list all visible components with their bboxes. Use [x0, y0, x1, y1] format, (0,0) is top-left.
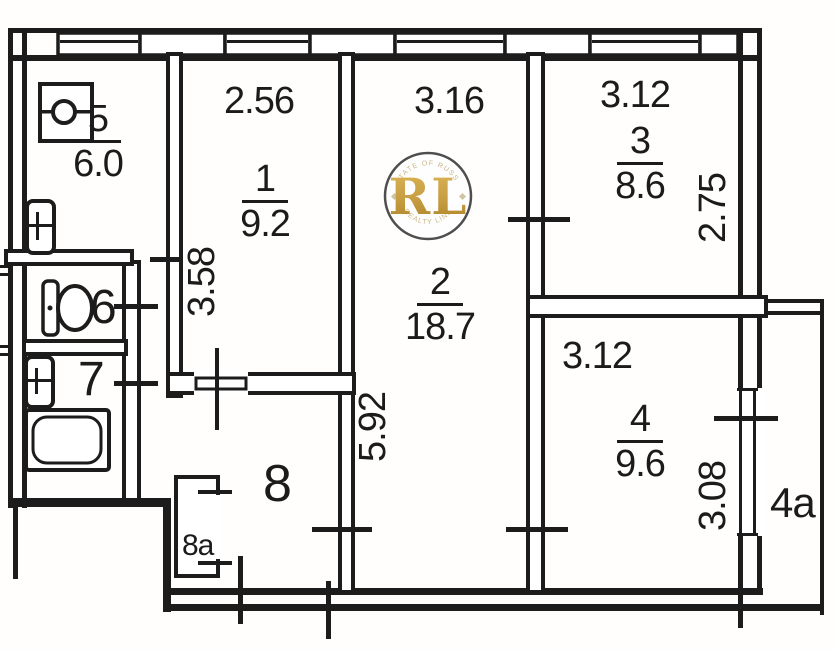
room-area: 18.7 — [405, 306, 475, 346]
room-label-hallway: 8 — [263, 458, 291, 510]
room-label-closet: 8a — [182, 531, 213, 561]
room-number: 3 — [617, 122, 663, 165]
dim-room2-width: 3.16 — [414, 82, 484, 120]
room-number: 2 — [417, 263, 463, 306]
bathtub-icon — [26, 410, 109, 470]
room-label-balcony: 4a — [770, 482, 815, 524]
room-number: 1 — [242, 160, 288, 203]
toilet-icon — [43, 281, 92, 335]
dim-room2-depth: 5.92 — [354, 382, 392, 472]
room-label-bathroom: 7 — [78, 356, 104, 404]
room1-door-leaf — [196, 378, 246, 389]
room-area: 6.0 — [73, 143, 123, 183]
dim-room4-depth: 3.08 — [694, 451, 732, 541]
dim-room3-depth: 2.75 — [694, 163, 732, 253]
room-label-wc: 6 — [90, 284, 116, 332]
room-label-room4: 4 9.6 — [600, 400, 680, 483]
stove-icon — [27, 201, 54, 253]
room-area: 9.2 — [240, 203, 290, 243]
dim-room1-depth: 3.58 — [183, 237, 221, 327]
dim-room4-width: 3.12 — [562, 337, 632, 375]
room-area: 9.6 — [615, 443, 665, 483]
dim-room3-width: 3.12 — [600, 76, 670, 114]
room-label-room2: 2 18.7 — [400, 263, 480, 346]
room-label-kitchen: 5 6.0 — [58, 100, 138, 183]
room-area: 8.6 — [615, 165, 665, 205]
room-number: 5 — [75, 100, 121, 143]
washbasin-icon — [26, 357, 53, 407]
floor-plan: ESTATE OF RUSSIA REALTY LINK RL 2.56 3.1… — [0, 0, 837, 650]
facade-windows — [58, 33, 738, 55]
room-number: 4 — [617, 400, 663, 443]
room-label-room1: 1 9.2 — [225, 160, 305, 243]
dim-room1-width: 2.56 — [224, 82, 294, 120]
room-label-room3: 3 8.6 — [600, 122, 680, 205]
watermark-letters: RL — [389, 167, 468, 226]
